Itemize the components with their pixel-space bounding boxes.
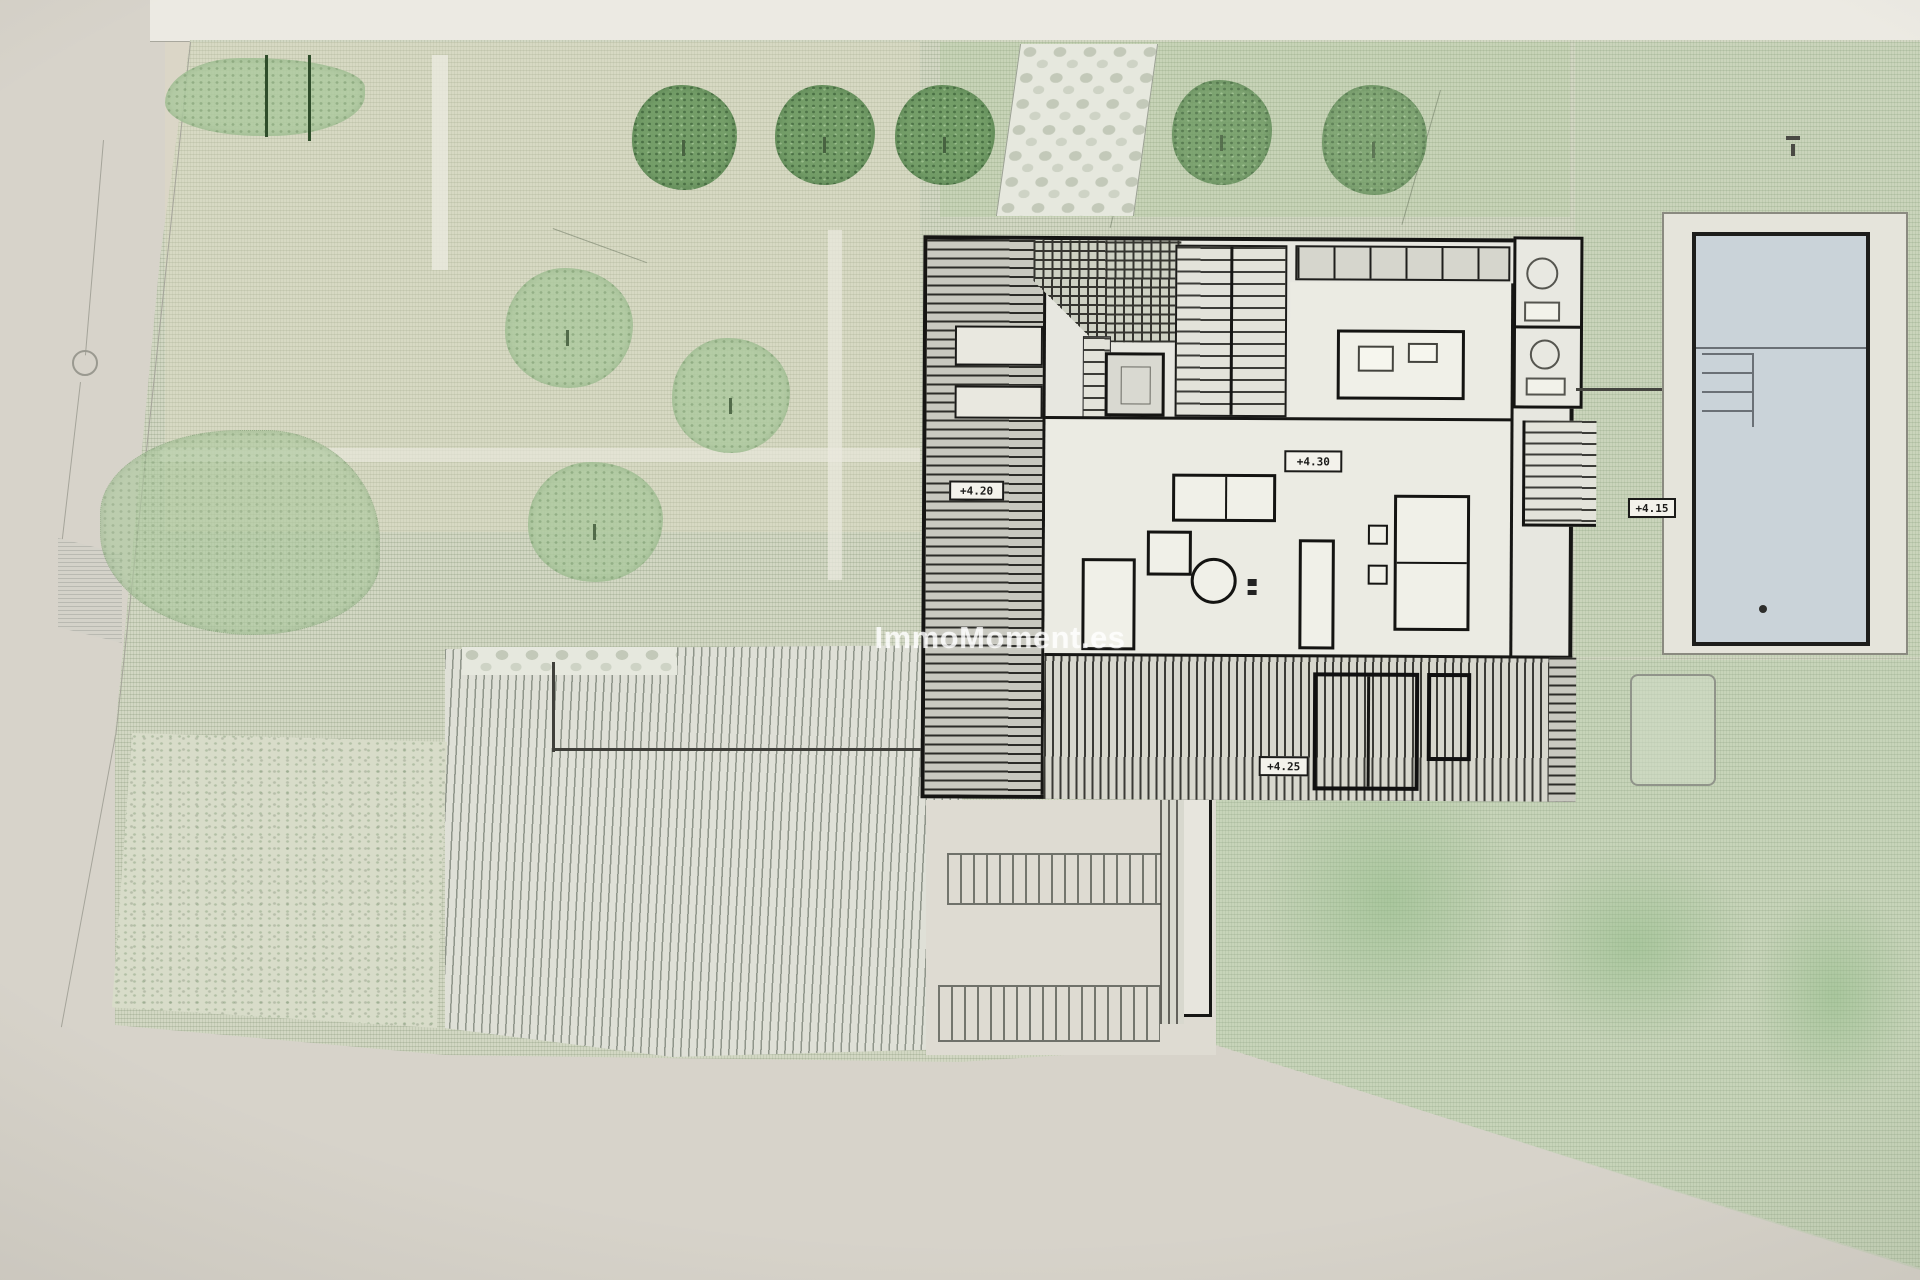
tree-canopy-mid-3 xyxy=(528,462,663,582)
house-footprint: +4.20 +4.30 +4.25 xyxy=(921,235,1575,801)
retaining-line-vertical xyxy=(552,662,555,752)
stone-path xyxy=(996,44,1158,216)
stepping-stones xyxy=(462,647,677,675)
sofa-cushion-divider xyxy=(1225,477,1227,519)
tree-trunk xyxy=(1372,142,1375,158)
exterior-stairs xyxy=(1522,420,1597,526)
dining-chair-2 xyxy=(1368,565,1388,585)
corner-mark-stem xyxy=(1791,144,1795,156)
kitchen-island xyxy=(1337,329,1465,400)
floor-drain xyxy=(1248,579,1257,586)
terrace-opening-1 xyxy=(1313,672,1420,791)
terrace-opening-2 xyxy=(1427,673,1471,761)
elevation-label-pool-side: +4.15 xyxy=(1628,498,1676,518)
elevation-label-deck-left: +4.20 xyxy=(949,480,1004,500)
toilet-1 xyxy=(1524,301,1560,321)
tree-trunk xyxy=(566,330,569,346)
tree-canopy-faint-3 xyxy=(1750,880,1920,1110)
boundary-marker xyxy=(72,350,98,376)
pool-terrace xyxy=(1662,212,1908,655)
plan-top-margin xyxy=(150,0,1920,42)
tree-canopy-mid-1 xyxy=(505,268,633,388)
corner-mark xyxy=(1786,136,1806,158)
tree-trunk xyxy=(823,137,826,153)
tree-canopy-top-2 xyxy=(775,85,875,185)
ramp-feature-upper xyxy=(947,853,1161,905)
tree-canopy-top-1 xyxy=(632,85,737,190)
island-sink xyxy=(1358,346,1394,372)
console-table xyxy=(1298,539,1335,649)
garden-path-vertical-2 xyxy=(828,230,842,580)
tree-trunk xyxy=(729,398,732,414)
tree-trunk xyxy=(943,137,946,153)
sofa xyxy=(1172,474,1276,523)
elevator-shaft xyxy=(1105,352,1165,416)
stair-divider xyxy=(1230,247,1234,415)
elevation-text: +4.25 xyxy=(1267,761,1300,772)
deck-inset-1 xyxy=(955,325,1043,365)
dining-table xyxy=(1393,495,1470,631)
watermark: ImmoMoment.es xyxy=(830,620,1170,656)
tree-trunk xyxy=(593,524,596,540)
path-corner-line xyxy=(1184,1014,1212,1017)
tree-canopy-top-5 xyxy=(1322,85,1427,195)
wood-deck-left xyxy=(925,239,1044,795)
path-gap xyxy=(1184,800,1212,1016)
path-band xyxy=(1160,800,1184,1024)
washbasin-round-1 xyxy=(1526,257,1558,289)
floor-drain-2 xyxy=(1248,590,1257,595)
deck-inset-2 xyxy=(955,385,1043,418)
boundary-line-lower xyxy=(61,735,116,1027)
tree-canopy-mid-2 xyxy=(672,338,790,453)
armchair xyxy=(1147,530,1192,575)
driveway-paving xyxy=(445,645,962,1057)
bathroom-divider-wall xyxy=(1516,325,1580,328)
tree-trunk xyxy=(682,140,685,156)
elevation-text: +4.30 xyxy=(1297,456,1330,467)
terrace-opening-divider xyxy=(1367,677,1371,787)
pool-connector-line xyxy=(1576,388,1662,391)
path-edge-line xyxy=(1209,800,1212,1017)
elevation-label-living-room: +4.30 xyxy=(1284,450,1342,472)
tree-trunk xyxy=(1220,135,1223,151)
pool-drain xyxy=(1759,605,1767,613)
corner-mark-bar xyxy=(1786,136,1800,140)
washbasin-round-2 xyxy=(1530,339,1560,369)
scrub-vegetation xyxy=(112,733,447,1028)
pergola-grid xyxy=(1033,240,1182,343)
planter-box xyxy=(1630,674,1716,786)
tree-canopy-faint-2 xyxy=(1515,840,1755,1050)
elevator-car xyxy=(1121,366,1151,404)
survey-line-upper xyxy=(85,140,104,355)
tree-canopy-top-3 xyxy=(895,85,995,185)
window-band xyxy=(1295,245,1510,281)
bathroom-block xyxy=(1513,236,1584,408)
site-plan-photo: +4.20 +4.30 +4.25 +4.15 ImmoMoment.es xyxy=(0,0,1920,1280)
tree-canopy-faint-1 xyxy=(1255,760,1525,1040)
garden-path-vertical-1 xyxy=(432,55,448,270)
coffee-table-round xyxy=(1191,558,1237,604)
deck-plank-band-east xyxy=(1549,658,1577,802)
swimming-pool xyxy=(1692,232,1870,646)
terrace-deck xyxy=(1044,655,1573,802)
toilet-2 xyxy=(1526,377,1566,395)
shrub-stem-1 xyxy=(265,55,268,137)
east-inner-wall xyxy=(1509,283,1514,657)
shrub-stem-2 xyxy=(308,55,311,141)
dining-table-line xyxy=(1397,562,1467,564)
retaining-line-horizontal xyxy=(552,748,962,751)
pool-divider xyxy=(1696,347,1866,349)
stair-block-main xyxy=(1175,245,1288,418)
dining-chair-1 xyxy=(1368,525,1388,545)
island-hob xyxy=(1408,343,1438,363)
pool-steps xyxy=(1702,353,1754,427)
elevation-text: +4.20 xyxy=(960,485,993,496)
tree-canopy-top-4 xyxy=(1172,80,1272,185)
ramp-feature-lower xyxy=(938,985,1160,1042)
elevation-label-terrace: +4.25 xyxy=(1259,756,1309,776)
elevation-text: +4.15 xyxy=(1635,503,1668,514)
